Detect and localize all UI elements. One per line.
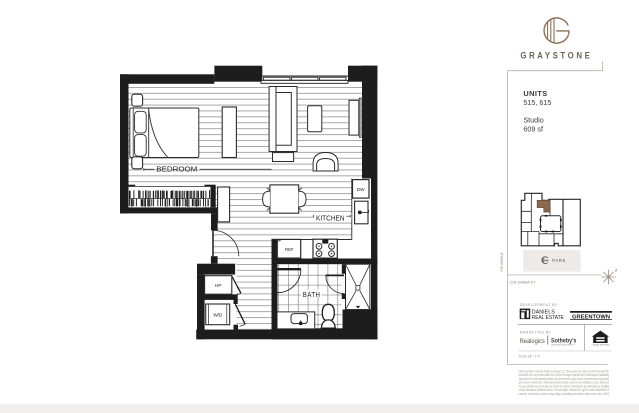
svg-text:EQUAL HOUSING: EQUAL HOUSING: [593, 344, 610, 347]
svg-text:COLUMBIA ST: COLUMBIA ST: [510, 280, 537, 285]
svg-text:DW: DW: [357, 187, 365, 192]
svg-text:GRAYSTONE: GRAYSTONE: [520, 51, 592, 61]
svg-text:Sotheby’s: Sotheby’s: [551, 337, 577, 344]
svg-text:KITCHEN: KITCHEN: [316, 213, 345, 222]
svg-text:609 sf: 609 sf: [523, 124, 543, 133]
svg-text:REAL ESTATE: REAL ESTATE: [532, 315, 564, 321]
svg-text:INTERNATIONAL REALTY: INTERNATIONAL REALTY: [551, 344, 575, 347]
svg-text:REF: REF: [285, 247, 294, 252]
svg-text:515, 615: 515, 615: [523, 98, 551, 107]
svg-text:UNITS: UNITS: [523, 89, 547, 98]
svg-text:DEVELOPMENT BY: DEVELOPMENT BY: [520, 303, 558, 307]
svg-text:Realogics: Realogics: [520, 338, 545, 345]
svg-text:HP: HP: [215, 283, 221, 288]
svg-text:PARK: PARK: [552, 258, 566, 263]
svg-text:BEDROOM: BEDROOM: [156, 165, 197, 174]
svg-text:BATH: BATH: [303, 290, 321, 299]
svg-text:W/D: W/D: [213, 312, 223, 317]
svg-text:MARKETING BY: MARKETING BY: [520, 331, 552, 335]
svg-text:Studio: Studio: [523, 115, 543, 124]
svg-text:8TH AVENUE: 8TH AVENUE: [499, 252, 504, 271]
svg-text:SCALE 1/8" = 1'-0": SCALE 1/8" = 1'-0": [519, 354, 541, 358]
svg-text:materials, specifications, pla: materials, specifications, plans, pricin…: [519, 392, 610, 396]
